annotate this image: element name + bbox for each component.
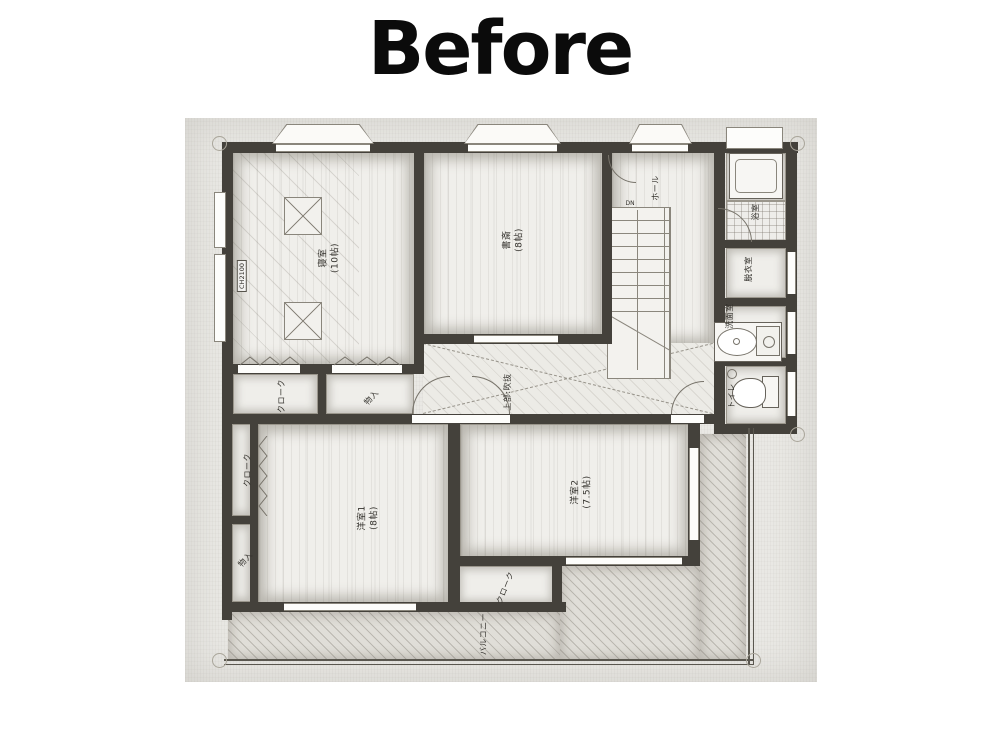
bathtub-inner bbox=[735, 159, 777, 193]
sink-drain bbox=[733, 338, 740, 345]
window-study-south bbox=[474, 335, 558, 343]
bay-window-2-glass bbox=[465, 125, 560, 143]
folding-door-icon bbox=[258, 436, 268, 516]
folding-door-icon bbox=[334, 356, 400, 366]
wall-closet-divider bbox=[318, 374, 326, 414]
window-west-2 bbox=[214, 254, 226, 342]
doorway-storage-upper bbox=[332, 365, 402, 373]
cloak-upper-floor bbox=[233, 374, 318, 414]
corner-column-symbol bbox=[790, 136, 805, 151]
stair-stringer bbox=[664, 207, 670, 379]
void-label: 上部:吹抜 bbox=[503, 373, 513, 410]
balcony-railing-south bbox=[224, 659, 754, 665]
window-north-1 bbox=[276, 144, 370, 152]
toilet-label: トイレ bbox=[727, 383, 737, 409]
bath-window bbox=[726, 127, 783, 149]
balcony-deck-south bbox=[228, 612, 560, 660]
doorway-cloak-upper bbox=[238, 365, 300, 373]
wall-hall-east bbox=[714, 153, 725, 434]
dressing-floor bbox=[726, 248, 786, 298]
doorway-corridor bbox=[412, 415, 510, 423]
wall-western1-western2 bbox=[448, 424, 460, 612]
window-western1-south bbox=[284, 603, 416, 611]
bay-window-1 bbox=[272, 124, 374, 144]
bay-window-3-glass bbox=[630, 125, 691, 143]
bay-window-1-glass bbox=[273, 125, 373, 143]
balcony-deck-notch bbox=[560, 566, 700, 660]
window-north-3 bbox=[632, 144, 688, 152]
balcony-railing-east bbox=[748, 428, 754, 664]
bedroom-post-symbol bbox=[284, 197, 322, 235]
dressing-room-label: 脱衣室 bbox=[744, 256, 754, 282]
stair-treads bbox=[608, 208, 670, 314]
window-west-1 bbox=[214, 192, 226, 248]
window-western2-east bbox=[689, 448, 699, 540]
wall-westcloset-divider bbox=[222, 516, 258, 524]
bedroom-post-symbol bbox=[284, 302, 322, 340]
ceiling-height-label: CH2100 bbox=[237, 260, 247, 292]
bath-label: 浴室 bbox=[751, 204, 761, 221]
corner-column-symbol bbox=[212, 653, 227, 668]
western-room-1-floor bbox=[258, 424, 450, 604]
floor-plan-page: Before bbox=[0, 0, 1000, 729]
washing-machine-drum bbox=[763, 336, 775, 348]
western-room-2-label: 洋室2 (7.5帖) bbox=[570, 475, 593, 508]
window-east-2 bbox=[787, 312, 796, 354]
window-north-2 bbox=[468, 144, 557, 152]
washing-machine bbox=[756, 326, 780, 356]
toilet-paper-holder bbox=[727, 369, 737, 379]
bedroom-label: 寝室 (10帖) bbox=[318, 243, 341, 273]
doorway-toilet bbox=[671, 415, 704, 423]
cloak-west-label: クローク bbox=[243, 453, 253, 487]
stair-direction-label: DN bbox=[625, 200, 634, 208]
corner-column-symbol bbox=[746, 653, 761, 668]
window-western2-south bbox=[566, 557, 682, 565]
western-room-1-label: 洋室1 (8帖) bbox=[357, 505, 380, 530]
wall-study-hall bbox=[602, 153, 612, 344]
corner-column-symbol bbox=[790, 427, 805, 442]
window-east-1 bbox=[787, 252, 796, 294]
washroom-label: 洗面室 bbox=[725, 303, 735, 329]
bathtub bbox=[729, 153, 783, 199]
window-east-3 bbox=[787, 372, 796, 416]
folding-door-icon bbox=[240, 356, 300, 366]
wall-eastcol-south bbox=[714, 424, 797, 434]
bay-window-3 bbox=[629, 124, 692, 144]
page-title: Before bbox=[0, 6, 1000, 92]
balcony-label: バルコニー bbox=[479, 613, 489, 655]
balcony-deck-east bbox=[700, 434, 746, 660]
bay-window-2 bbox=[464, 124, 561, 144]
corner-column-symbol bbox=[212, 136, 227, 151]
cloak-upper-label: クローク bbox=[277, 379, 287, 413]
stair-guide-line bbox=[637, 210, 638, 370]
study-label: 書斎 (8帖) bbox=[502, 228, 525, 252]
hall-label: ホール bbox=[651, 175, 661, 201]
